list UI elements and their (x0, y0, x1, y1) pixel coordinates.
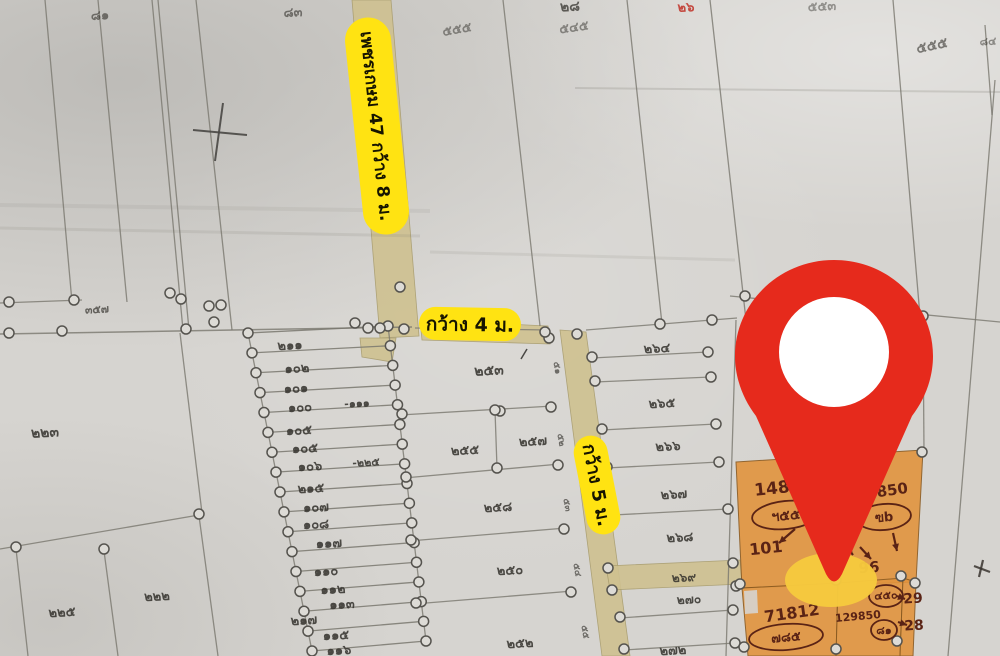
plot-label: ๘๑ (90, 8, 109, 24)
plot-label: ๕๑ (550, 361, 562, 375)
plot-label: ๒๘ (560, 0, 581, 16)
survey-marker (728, 558, 738, 568)
plot-label: ๒๖๘ (666, 530, 694, 546)
survey-marker (388, 360, 398, 370)
survey-marker (896, 571, 906, 581)
plot-label: ๑๑๐ (313, 564, 338, 580)
plot-label: ๘๔ (979, 35, 997, 49)
pencil-line (400, 406, 553, 415)
plot-label: ๑๑๓ (329, 597, 355, 613)
plot-label: -๒๒๕ (352, 455, 381, 469)
plot-label: ๒๕๕ (451, 443, 480, 459)
plot-label: ๒๖ (677, 0, 695, 16)
survey-marker (546, 402, 556, 412)
plot-label: ๕๕๕ (915, 35, 950, 57)
survey-marker (735, 579, 745, 589)
paper-notch (744, 590, 758, 614)
pencil-line (409, 528, 566, 541)
road-label-text: กว้าง 4 ม. (426, 313, 515, 337)
strip-boundary (276, 464, 405, 472)
plot-label: ๕๕๓ (807, 0, 836, 15)
plot-label: ๑๐๖ (297, 459, 322, 475)
pencil-line (607, 462, 719, 468)
plot-label: ๒๑๑ (277, 338, 303, 354)
survey-marker (714, 457, 724, 467)
survey-marker (255, 388, 265, 398)
survey-marker (247, 348, 257, 358)
pencil-line (0, 228, 420, 236)
plot-label: ๑๑๒ (320, 582, 346, 598)
plot-label: ๒๖๖ (655, 439, 681, 455)
survey-marker (291, 567, 301, 577)
survey-marker (407, 518, 417, 528)
pencil-line (152, 0, 183, 330)
pencil-line (199, 516, 218, 656)
plot-label: ๒๗๒ (659, 643, 687, 656)
plot-label: ๑๐๗ (303, 500, 330, 516)
pencil-line (495, 410, 497, 468)
survey-marker (421, 636, 431, 646)
road-label-pill: กว้าง 5 ม. (571, 433, 623, 538)
survey-marker (553, 460, 563, 470)
survey-marker (723, 504, 733, 514)
plot-label: ๑๑๗ (315, 536, 342, 552)
pencil-line (196, 0, 232, 330)
survey-marker (590, 376, 600, 386)
handwritten-annotation: ๘๑ (876, 624, 891, 637)
pencil-line (602, 424, 716, 430)
survey-marker (181, 324, 191, 334)
survey-marker (399, 324, 409, 334)
survey-marker (703, 347, 713, 357)
pencil-line (180, 333, 202, 513)
survey-marker (540, 327, 550, 337)
pencil-line (613, 509, 728, 515)
strip-boundary (260, 385, 395, 393)
plot-label: ๒๗๐ (676, 592, 701, 607)
survey-marker (414, 577, 424, 587)
handwritten-annotation: ๔๕๐ (874, 588, 898, 602)
survey-marker (243, 328, 253, 338)
survey-marker (390, 380, 400, 390)
survey-marker (490, 405, 500, 415)
survey-marker (400, 459, 410, 469)
survey-marker (831, 644, 841, 654)
plot-label: ๒๕๐ (496, 563, 523, 579)
survey-marker (307, 646, 317, 656)
survey-marker (587, 352, 597, 362)
survey-marker (4, 328, 14, 338)
survey-marker (69, 295, 79, 305)
plot-label: ๒๖๙ (671, 570, 696, 585)
pencil-line (595, 377, 711, 382)
pencil-line (104, 551, 118, 656)
survey-marker (165, 288, 175, 298)
plot-label: ๒๕๗ (519, 434, 548, 450)
survey-marker (287, 547, 297, 557)
survey-marker (655, 319, 665, 329)
pencil-line (521, 349, 527, 359)
survey-marker (209, 317, 219, 327)
plot-label: ๒๖๕ (648, 396, 676, 412)
survey-marker (283, 527, 293, 537)
survey-marker (385, 341, 395, 351)
plot-label: ๕๓ (560, 498, 572, 513)
handwritten-annotation: 29 (903, 591, 923, 608)
plot-label: ๑๐๐ (288, 400, 313, 416)
survey-marker (404, 498, 414, 508)
plot-label: ๑๐๕ (292, 441, 319, 457)
survey-marker (411, 598, 421, 608)
handwritten-annotation: ๗๘๕ (771, 629, 802, 647)
survey-marker (397, 439, 407, 449)
plot-label: ๑๐๕ (286, 423, 313, 439)
survey-marker (279, 507, 289, 517)
plot-label: ๒๖๔ (643, 341, 671, 357)
survey-marker (263, 427, 273, 437)
survey-marker (393, 400, 403, 410)
pencil-line (0, 515, 199, 549)
plot-label: ๑๐๑ (283, 381, 308, 397)
survey-marker (375, 323, 385, 333)
plot-label: ๒๒๓ (31, 424, 60, 441)
survey-marker (4, 297, 14, 307)
survey-marker (194, 509, 204, 519)
survey-marker (910, 578, 920, 588)
survey-map-photo: ๒๑๑๑๐๒๑๐๑๑๐๐-๑๑๑๑๐๕๑๐๕๑๐๖-๒๒๕๒๑๕๑๐๗๑๐๘๑๑… (0, 0, 1000, 656)
pencil-line (627, 0, 662, 324)
survey-marker (275, 487, 285, 497)
pencil-line (414, 591, 573, 604)
survey-marker (597, 424, 607, 434)
survey-marker (711, 419, 721, 429)
survey-marker (559, 524, 569, 534)
plot-label: ๒๒๕ (48, 605, 76, 621)
survey-marker (406, 535, 416, 545)
handwritten-annotation: ฯ๕๕ (771, 506, 802, 525)
plot-label: ๕๒ (554, 433, 566, 447)
pencil-line (948, 80, 995, 656)
plot-label: ๒๕๓ (474, 362, 505, 380)
plot-label: ๘๓ (283, 5, 303, 21)
survey-marker (706, 372, 716, 382)
survey-marker (707, 315, 717, 325)
survey-marker (603, 563, 613, 573)
survey-marker (397, 409, 407, 419)
survey-marker (176, 294, 186, 304)
plot-label: ๓๕๗ (85, 302, 110, 316)
handwritten-annotation: 101 (748, 537, 783, 559)
survey-marker (295, 586, 305, 596)
plot-label: ๑๑๕ (322, 628, 349, 644)
plot-label: ๒๕๘ (483, 500, 512, 516)
survey-marker (350, 318, 360, 328)
survey-marker (363, 323, 373, 333)
strip-boundary (304, 602, 421, 612)
survey-marker (572, 329, 582, 339)
survey-marker (267, 447, 277, 457)
plot-label: ๕๔๕ (558, 18, 589, 37)
plot-label: ๒๖๗ (660, 487, 688, 503)
survey-marker (419, 616, 429, 626)
survey-marker (739, 642, 749, 652)
strip-boundary (264, 405, 398, 413)
plot-label: ๒๕๒ (506, 636, 534, 652)
pencil-line (404, 464, 560, 478)
pencil-line (16, 549, 28, 656)
strip-boundary (300, 582, 419, 591)
survey-marker (607, 585, 617, 595)
survey-marker (251, 368, 261, 378)
road-label-pill: กว้าง 4 ม. (419, 307, 522, 342)
pencil-line (710, 0, 746, 320)
survey-marker (492, 463, 502, 473)
survey-marker (619, 644, 629, 654)
cadastral-map-canvas: ๒๑๑๑๐๒๑๐๑๑๐๐-๑๑๑๑๐๕๑๐๕๑๐๖-๒๒๕๒๑๕๑๐๗๑๐๘๑๑… (0, 0, 1000, 656)
survey-marker (401, 472, 411, 482)
pencil-line (158, 0, 189, 330)
highlighted-plot (900, 578, 916, 656)
plot-label: ๕๕ (578, 625, 590, 640)
survey-marker (204, 301, 214, 311)
pencil-line (503, 0, 540, 326)
pencil-line (620, 610, 733, 618)
plot-label: ๒๒๒ (144, 589, 170, 605)
strip-boundary (292, 543, 414, 552)
survey-marker (615, 612, 625, 622)
survey-marker (395, 419, 405, 429)
plot-label: ๕๔ (570, 563, 582, 578)
survey-marker (412, 557, 422, 567)
survey-marker (395, 282, 405, 292)
strip-boundary (256, 365, 393, 372)
handwritten-annotation: 28 (904, 618, 924, 635)
pin-hole (779, 297, 889, 407)
plot-label: ๑๐๒ (284, 361, 310, 377)
plot-label: ๕๕๕ (441, 20, 473, 40)
plot-label: ๒๑๕ (297, 481, 325, 497)
survey-marker (259, 408, 269, 418)
survey-marker (216, 300, 226, 310)
survey-marker (566, 587, 576, 597)
plot-label: ๒๑๗ (290, 613, 318, 629)
plot-label: ๑๐๘ (303, 517, 330, 533)
handwritten-annotation: ฃb (874, 510, 894, 527)
pencil-line (575, 88, 1000, 92)
pencil-line (430, 252, 735, 260)
survey-marker (99, 544, 109, 554)
plot-label: ๑๑๖ (326, 643, 352, 656)
pencil-line (45, 0, 72, 302)
pencil-line (98, 0, 127, 302)
survey-marker (740, 291, 750, 301)
survey-marker (11, 542, 21, 552)
survey-marker (271, 467, 281, 477)
survey-marker (917, 447, 927, 457)
survey-marker (728, 605, 738, 615)
survey-marker (57, 326, 67, 336)
plot-label: -๑๑๑ (344, 396, 370, 410)
